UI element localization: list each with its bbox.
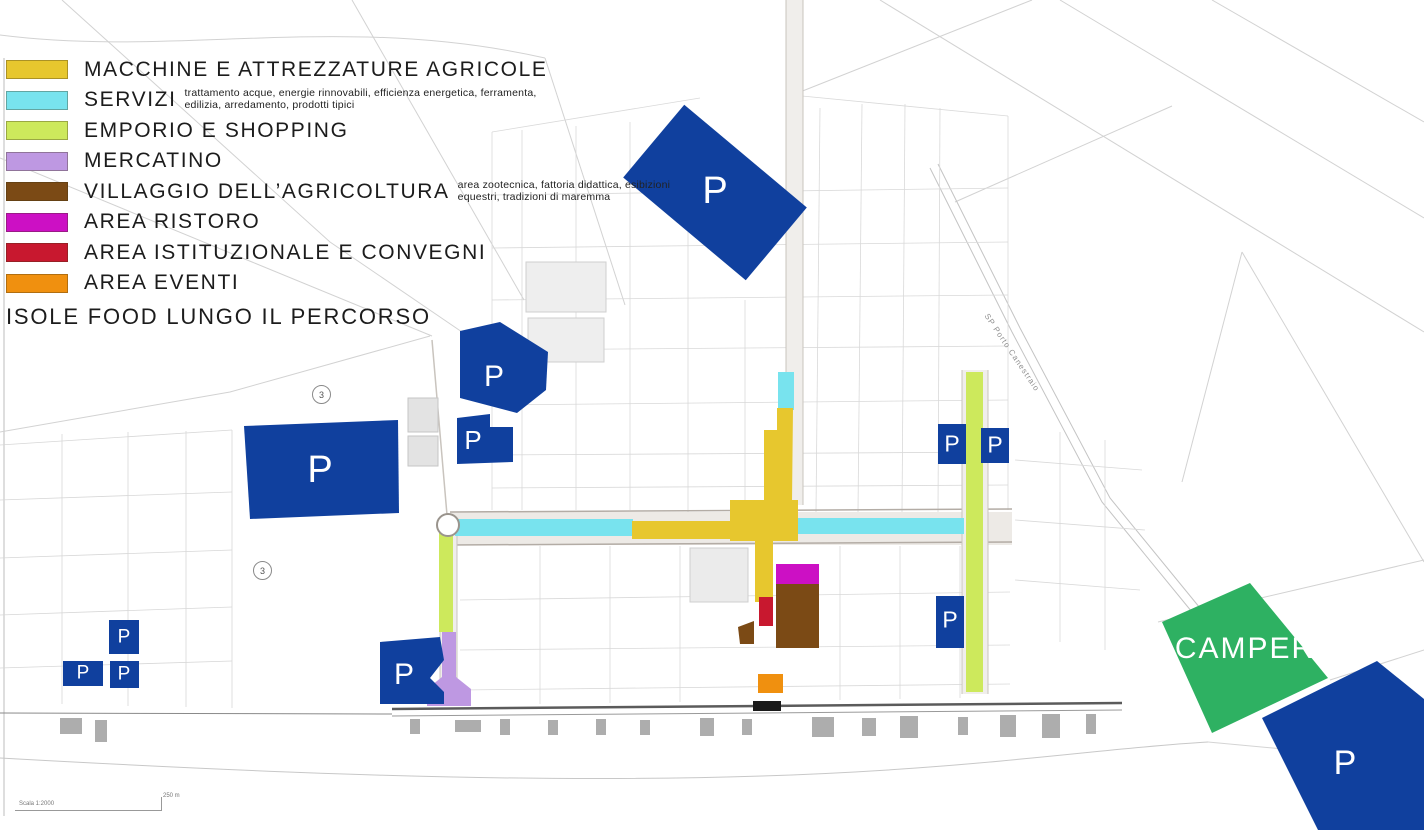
- legend-item-villaggio: VILLAGGIO DELL’AGRICOLTURA area zootecni…: [6, 182, 686, 201]
- legend-swatch-emporio: [6, 121, 68, 140]
- parking-label: P: [987, 434, 1002, 457]
- legend-swatch-mercatino: [6, 152, 68, 171]
- legend-label: EMPORIO E SHOPPING: [84, 119, 349, 143]
- legend-label: MERCATINO: [84, 149, 223, 173]
- area-eventi: [758, 674, 783, 693]
- scale-label: Scala 1:2000: [19, 801, 54, 807]
- area-macchine-hub: [730, 500, 798, 541]
- roundabout: [436, 513, 460, 537]
- legend-swatch-ristoro: [6, 213, 68, 232]
- legend-label: SERVIZI: [84, 88, 177, 112]
- parking-label: P: [394, 660, 414, 690]
- area-istituzionale: [759, 597, 773, 626]
- route-macchine-south: [755, 540, 773, 602]
- scale-distance-label: 250 m: [163, 793, 180, 799]
- legend-swatch-eventi: [6, 274, 68, 293]
- legend-swatch-istituzionale: [6, 243, 68, 262]
- parking-label: P: [702, 172, 727, 210]
- road-sign-3: 3: [253, 561, 272, 580]
- legend-label: AREA ISTITUZIONALE E CONVEGNI: [84, 241, 486, 265]
- legend-footer: ISOLE FOOD LUNGO IL PERCORSO: [6, 304, 686, 330]
- legend-item-macchine: MACCHINE E ATTREZZATURE AGRICOLE: [6, 60, 686, 79]
- legend-swatch-villaggio: [6, 182, 68, 201]
- legend: MACCHINE E ATTREZZATURE AGRICOLE SERVIZI…: [6, 60, 686, 330]
- legend-label: MACCHINE E ATTREZZATURE AGRICOLE: [84, 58, 547, 82]
- route-servizi-north: [778, 372, 794, 410]
- legend-item-eventi: AREA EVENTI: [6, 274, 686, 293]
- scale-bar-tick: [161, 797, 162, 810]
- parking-label: P: [942, 609, 957, 632]
- legend-label: VILLAGGIO DELL’AGRICOLTURA: [84, 180, 450, 204]
- legend-item-mercatino: MERCATINO: [6, 152, 686, 171]
- parking-label: P: [944, 433, 959, 456]
- legend-swatch-servizi: [6, 91, 68, 110]
- legend-note: area zootecnica, fattoria didattica, esi…: [458, 180, 683, 204]
- parking-label: P: [307, 451, 332, 489]
- parking-label: P: [118, 628, 131, 647]
- route-emporio-east: [966, 372, 983, 692]
- route-macchine-center: [632, 521, 735, 539]
- legend-item-emporio: EMPORIO E SHOPPING: [6, 121, 686, 140]
- legend-label: AREA RISTORO: [84, 210, 260, 234]
- legend-item-ristoro: AREA RISTORO: [6, 213, 686, 232]
- area-ristoro: [776, 564, 819, 584]
- parking-label: P: [1334, 746, 1357, 780]
- area-villaggio: [776, 597, 819, 648]
- parking-label: P: [77, 664, 90, 683]
- camper-label: CAMPER: [1175, 632, 1315, 666]
- route-servizi-west: [455, 519, 633, 536]
- legend-item-servizi: SERVIZI trattamento acque, energie rinno…: [6, 91, 686, 110]
- parking-label: P: [464, 427, 481, 453]
- event-map: P P P P P P P P P P P P CAMPER 3 3 SP Po…: [0, 0, 1424, 830]
- route-emporio-west: [439, 528, 453, 632]
- route-servizi-east: [797, 518, 964, 534]
- legend-item-istituzionale: AREA ISTITUZIONALE E CONVEGNI: [6, 243, 686, 262]
- legend-swatch-macchine: [6, 60, 68, 79]
- scale-bar: [15, 810, 162, 811]
- legend-note: trattamento acque, energie rinnovabili, …: [185, 88, 545, 112]
- legend-label: AREA EVENTI: [84, 271, 239, 295]
- area-villaggio-strip: [776, 584, 819, 597]
- road-sign-3: 3: [312, 385, 331, 404]
- parking-label: P: [118, 665, 131, 684]
- parking-label: P: [484, 362, 504, 392]
